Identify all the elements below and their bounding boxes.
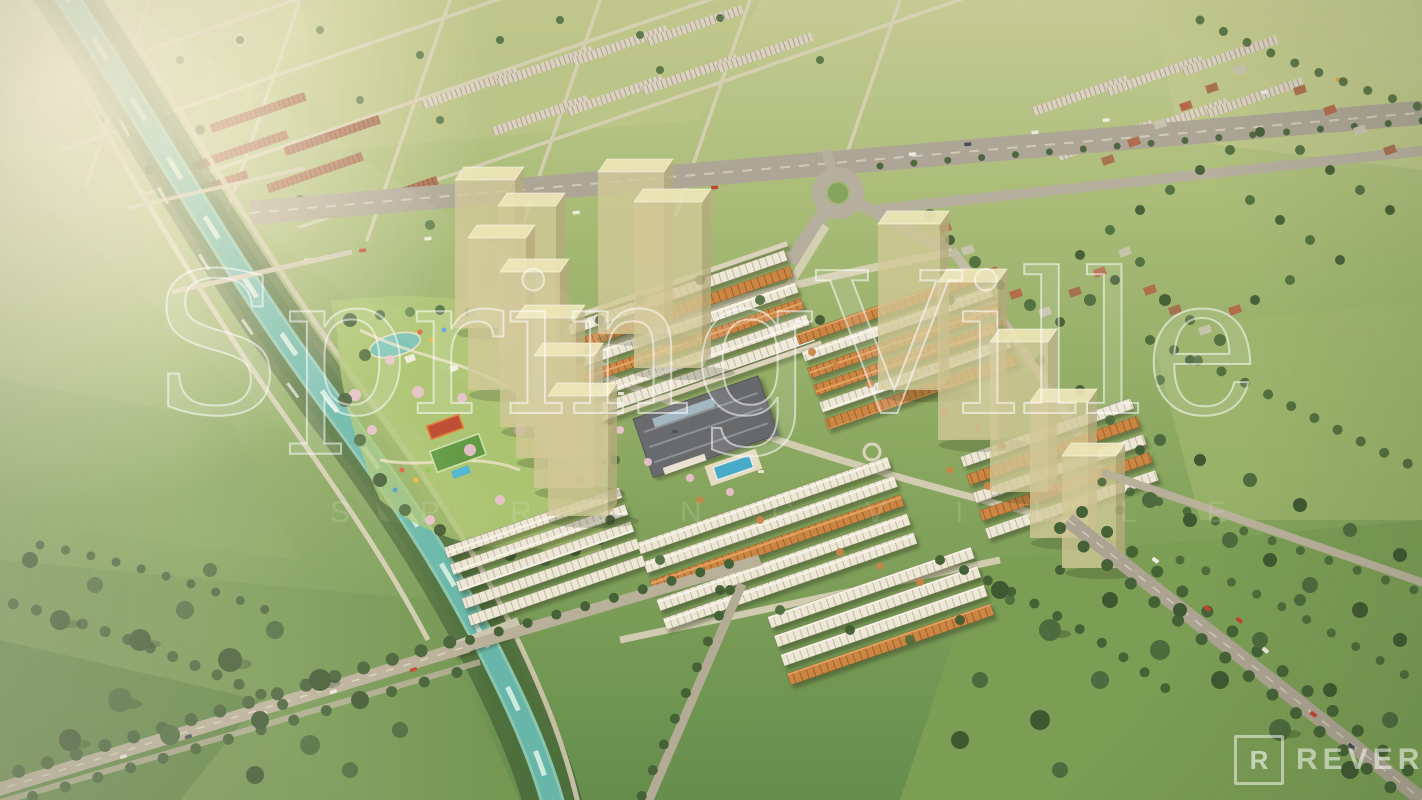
sun-flare bbox=[0, 0, 1422, 800]
aerial-render: SpringVille SPRINGVILLE R REVER bbox=[0, 0, 1422, 800]
scene-canvas bbox=[0, 0, 1422, 800]
